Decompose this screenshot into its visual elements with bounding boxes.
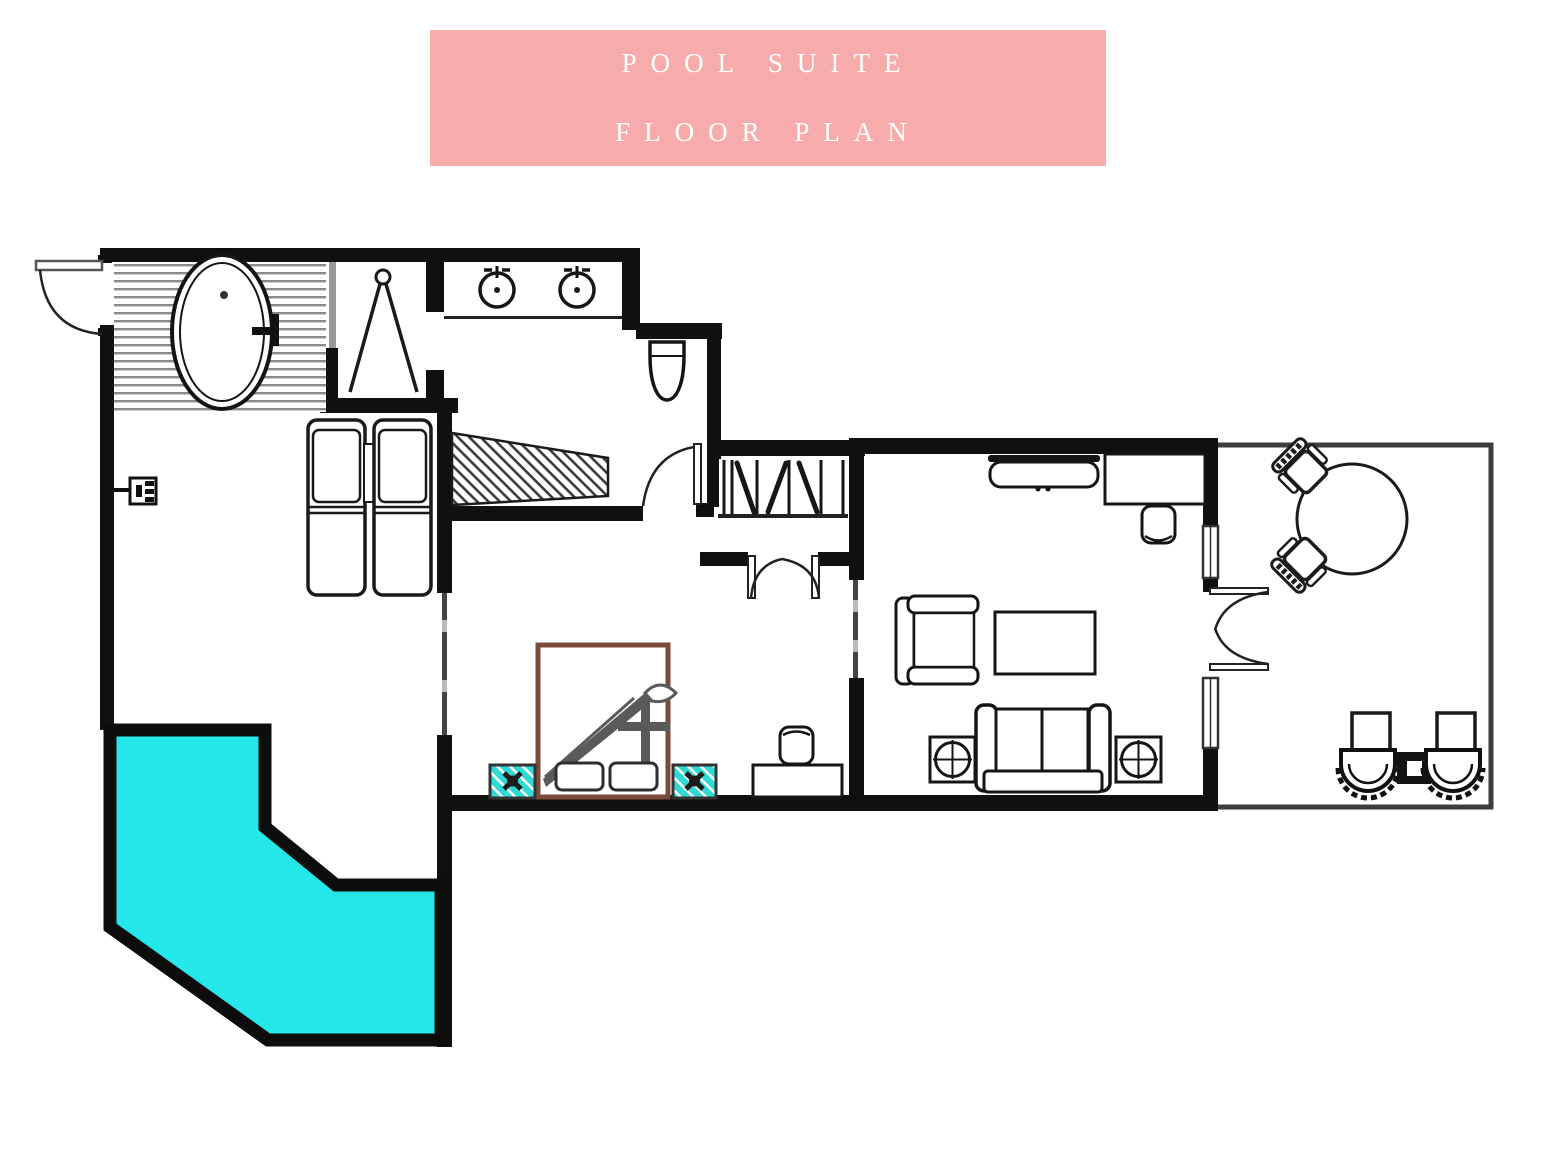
- sliding-door-bedroom-living: [853, 580, 858, 678]
- glass-partition: [329, 262, 336, 348]
- terrace-french-doors: [1210, 588, 1268, 670]
- nightstand-left: [490, 765, 535, 798]
- private-pool: [110, 730, 441, 1040]
- coffee-table: [995, 612, 1095, 674]
- wardrobe: [718, 460, 848, 518]
- side-table-right: [1116, 737, 1161, 782]
- living-room-windows: [1203, 526, 1218, 748]
- side-table-left: [930, 737, 975, 782]
- sink-right-icon: [560, 266, 594, 307]
- toilet: [650, 342, 684, 400]
- luggage-bench: [452, 433, 608, 505]
- bed: [538, 645, 676, 797]
- sink-left-icon: [480, 266, 514, 307]
- sun-loungers: [308, 420, 431, 595]
- outdoor-shower-valve-icon: [114, 478, 156, 504]
- armchair: [896, 596, 978, 684]
- pillow-right: [610, 763, 657, 790]
- sliding-door-bedroom-deck: [442, 593, 447, 735]
- vestibule-double-door: [748, 556, 819, 598]
- bedroom-writing-desk: [753, 727, 842, 797]
- entry-door: [36, 261, 102, 334]
- double-vanity: [444, 266, 622, 319]
- living-desk: [1105, 454, 1205, 543]
- terrace-lounge-left: [1338, 713, 1398, 798]
- shower: [350, 270, 417, 392]
- tv-console: [988, 455, 1100, 492]
- pillow-left: [556, 763, 603, 790]
- sofa: [976, 705, 1110, 792]
- terrace-lounge-right: [1423, 713, 1483, 798]
- floor-plan-drawing: [0, 0, 1564, 1154]
- nightstand-right: [673, 765, 716, 798]
- floor-plan-page: POOL SUITE FLOOR PLAN: [0, 0, 1564, 1154]
- bathroom-door: [643, 444, 701, 506]
